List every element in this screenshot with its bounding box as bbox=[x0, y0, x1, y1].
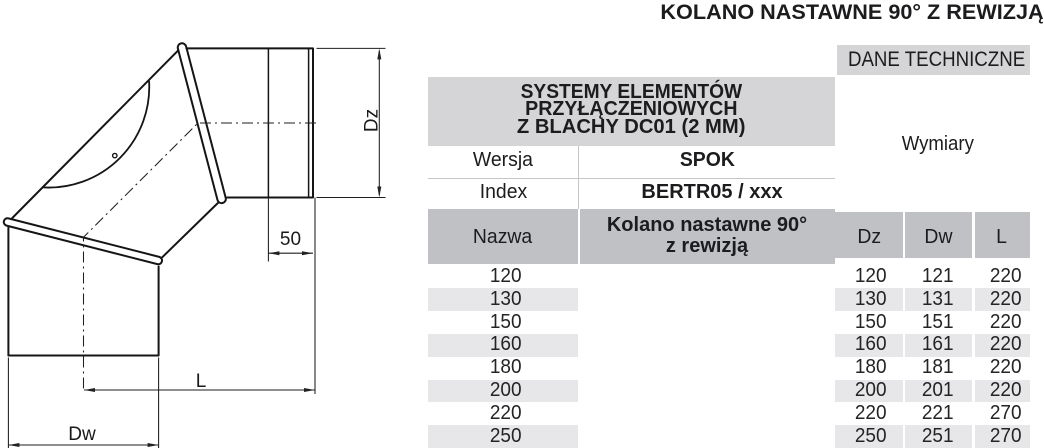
svg-text:50: 50 bbox=[280, 229, 301, 250]
svg-text:L: L bbox=[196, 371, 207, 392]
svg-text:Dw: Dw bbox=[68, 424, 96, 445]
svg-text:Dz: Dz bbox=[362, 109, 383, 132]
